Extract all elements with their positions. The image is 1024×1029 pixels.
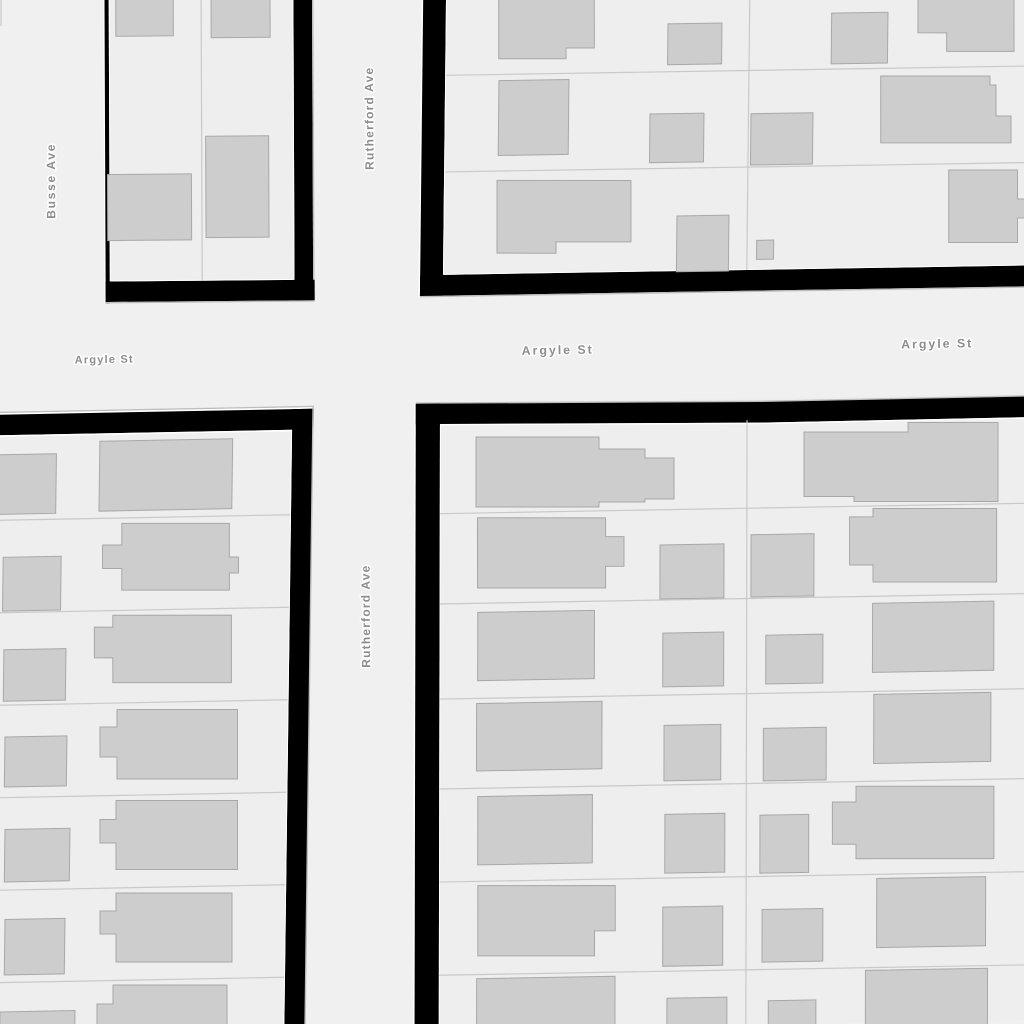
svg-text:Argyle St: Argyle St (75, 353, 134, 366)
svg-text:Rutherford Ave: Rutherford Ave (359, 564, 374, 667)
svg-text:Busse Ave: Busse Ave (44, 143, 58, 219)
svg-text:Argyle St: Argyle St (522, 343, 594, 358)
svg-text:Rutherford Ave: Rutherford Ave (362, 67, 377, 170)
svg-text:Argyle St: Argyle St (901, 336, 973, 351)
